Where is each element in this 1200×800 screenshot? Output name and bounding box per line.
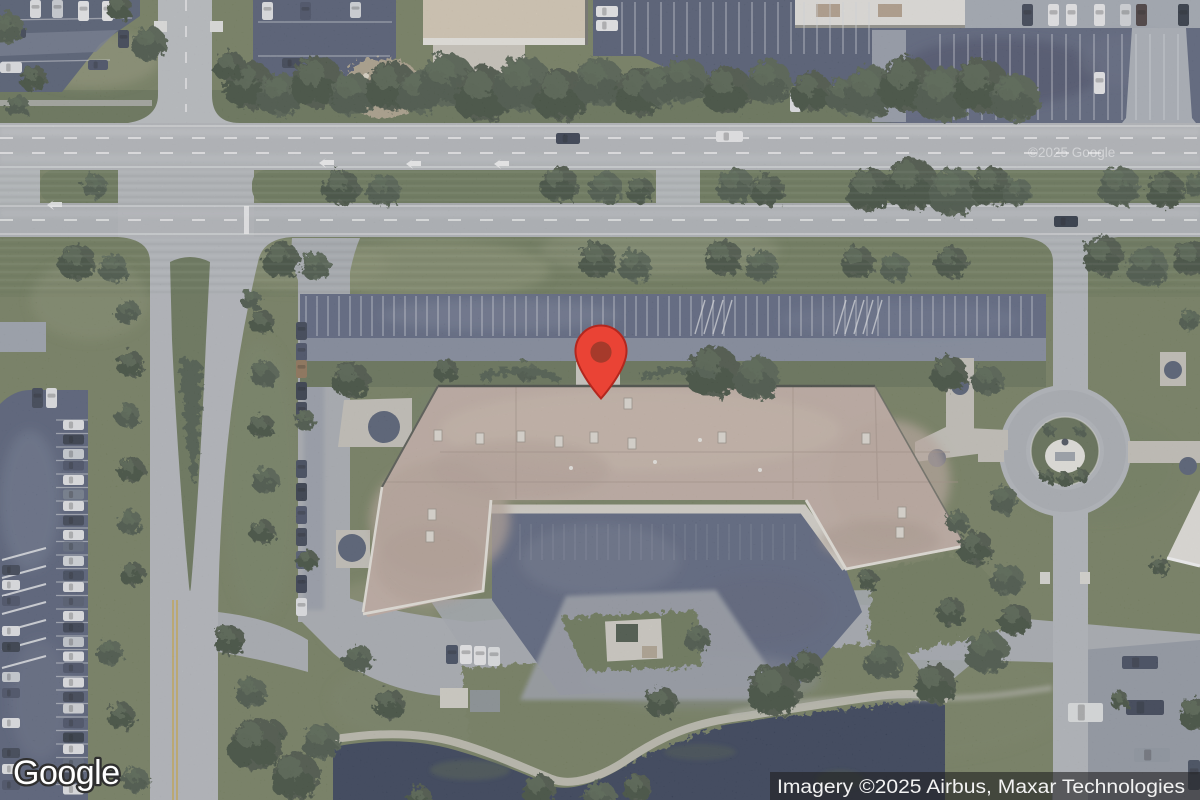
- svg-text:©2025 Google: ©2025 Google: [1028, 145, 1115, 160]
- svg-text:Google: Google: [13, 754, 120, 792]
- svg-text:Imagery ©2025 Airbus, Maxar Te: Imagery ©2025 Airbus, Maxar Technologies: [777, 777, 1185, 798]
